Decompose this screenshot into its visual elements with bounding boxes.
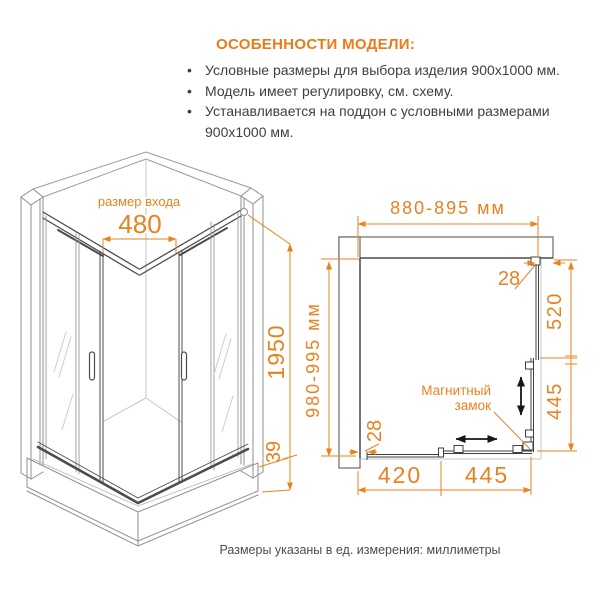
feature-text: Устанавливается на поддон с условными ра… [205, 103, 550, 140]
plan-wall-inner-edges [360, 258, 553, 458]
side-fixed-value: 520 [544, 292, 566, 330]
iso-wall-left [21, 189, 43, 479]
feature-item: Условные размеры для выбора изделия 900x… [185, 60, 591, 81]
feature-text: Условные размеры для выбора изделия 900x… [205, 62, 560, 78]
plan-wall-left [339, 237, 360, 468]
iso-door-stiles [100, 250, 182, 483]
iso-drawing: размер входа 480 1950 39 [0, 140, 300, 560]
bottom-fixed-value: 420 [378, 462, 422, 488]
top-gap-value: 28 [498, 268, 520, 290]
plan-depth-value: 980-995 мм [303, 302, 323, 418]
feature-text: Модель имеет регулировку, см. схему. [205, 83, 453, 99]
features-block: ОСОБЕННОСТИ МОДЕЛИ: Условные размеры для… [185, 36, 591, 142]
entrance-dim-ext [103, 239, 176, 253]
base-height-value: 39 [263, 441, 285, 463]
bottom-gap-leader [365, 444, 379, 451]
lock-leader [494, 412, 530, 449]
iso-bottom-rail-edges [38, 442, 248, 498]
lock-label-line1: Магнитный [421, 383, 491, 398]
plan-fixed-panel-right [536, 262, 539, 360]
bottom-door-value: 445 [465, 462, 509, 488]
units-note: Размеры указаны в ед. измерения: миллиме… [130, 543, 590, 557]
bottom-gap-value: 28 [364, 420, 386, 442]
entrance-label: размер входа [98, 194, 181, 209]
plan-fittings [439, 257, 541, 457]
iso-glass-reflections [54, 332, 233, 432]
features-list: Условные размеры для выбора изделия 900x… [185, 60, 591, 142]
lock-label-line2: замок [455, 398, 491, 413]
plan-width-value: 880-895 мм [390, 198, 506, 218]
plan-glass [367, 262, 539, 460]
door-handle-right [182, 352, 187, 380]
height-value: 1950 [263, 324, 289, 379]
plan-drawing: 880-895 мм 980-995 мм 28 520 445 28 420 … [300, 170, 600, 510]
iso-wall-right [241, 188, 263, 478]
side-door-value: 445 [544, 382, 566, 420]
plan-door-right [531, 358, 534, 452]
corner-connector [241, 209, 248, 216]
feature-item: Модель имеет регулировку, см. схему. [185, 81, 591, 102]
product-diagram-page: ОСОБЕННОСТИ МОДЕЛИ: Условные размеры для… [0, 0, 600, 600]
iso-ceiling-lines [33, 152, 251, 197]
iso-dimension-labels: размер входа 480 1950 39 [98, 194, 289, 463]
entrance-size-value: 480 [118, 209, 161, 239]
feature-item: Устанавливается на поддон с условными ра… [185, 101, 591, 142]
door-handle-left [90, 352, 95, 380]
iso-fixed-panel-edges [46, 213, 238, 474]
features-title: ОСОБЕННОСТИ МОДЕЛИ: [216, 36, 591, 53]
plan-wall-top [339, 237, 553, 258]
